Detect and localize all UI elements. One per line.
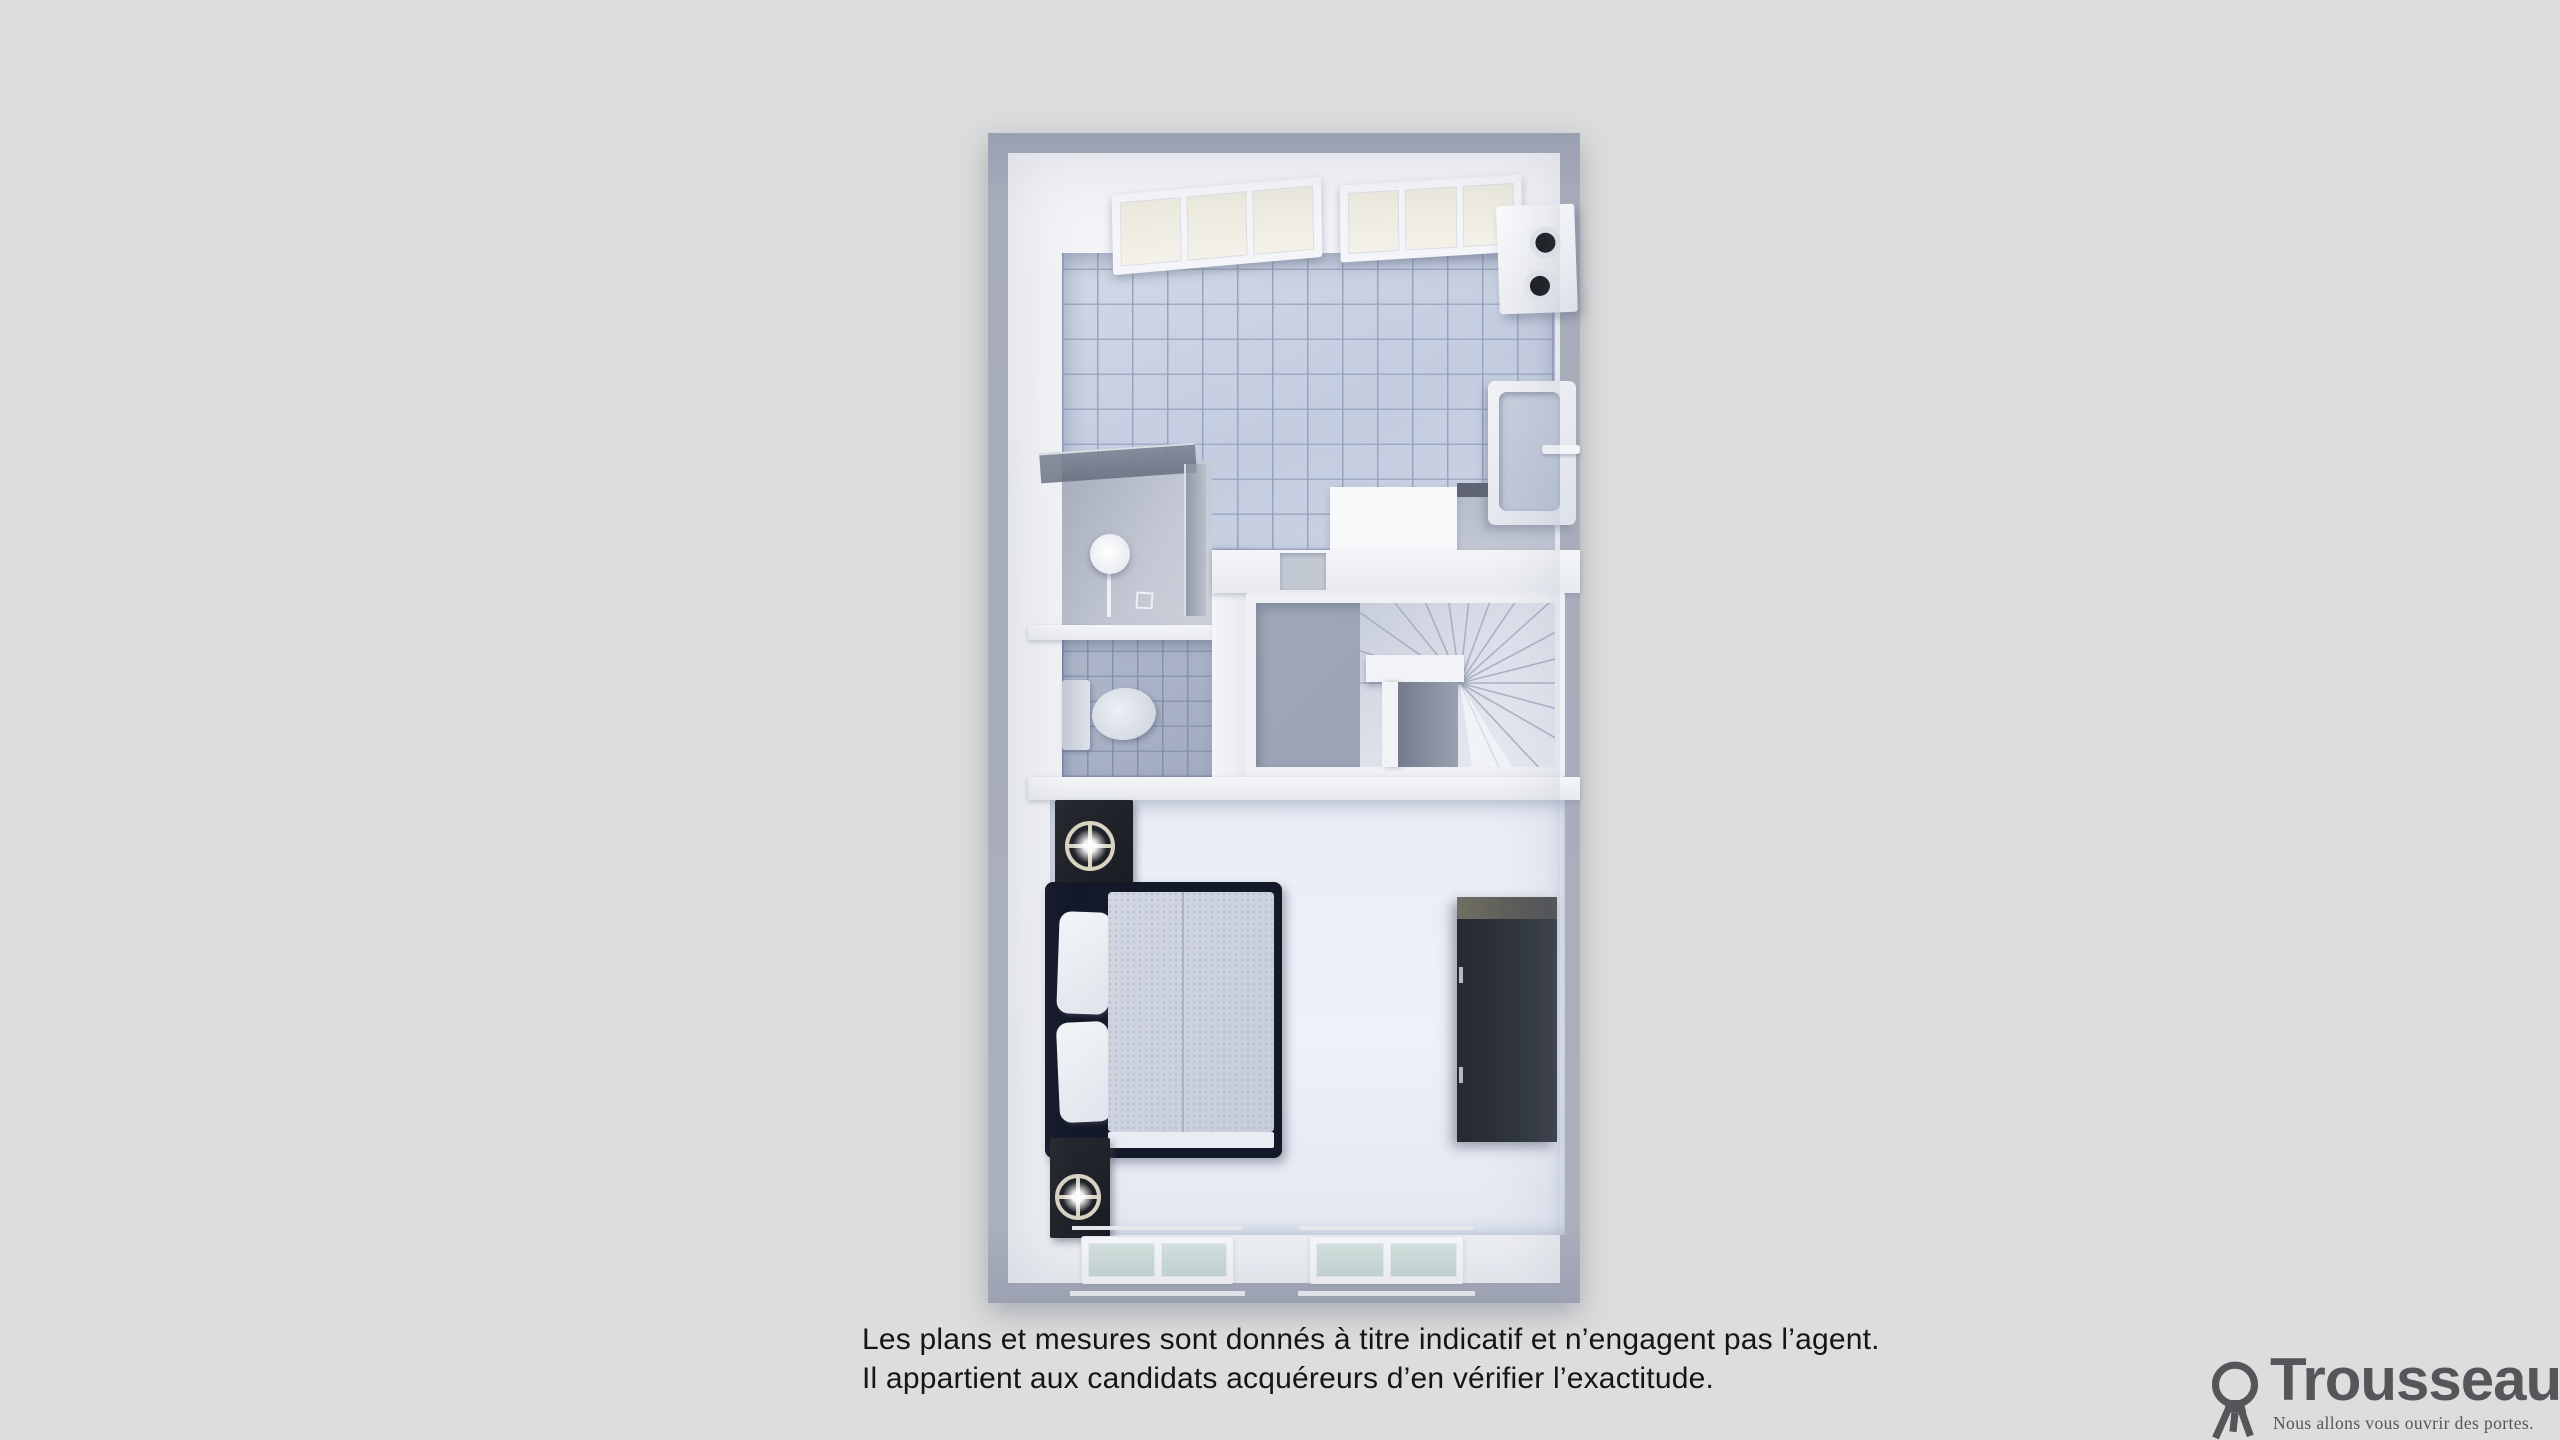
toilet-tank-icon (1062, 680, 1090, 750)
walk-in-shower (1062, 460, 1212, 625)
window-pane (1390, 1243, 1458, 1277)
keyring-icon (2204, 1358, 2266, 1440)
toilet-icon (1089, 685, 1158, 743)
window-icon (1082, 1237, 1233, 1283)
sink-icon (1488, 381, 1576, 525)
window-pane (1253, 185, 1315, 254)
nightstand-icon (1055, 800, 1133, 886)
window-pane (1161, 1243, 1228, 1277)
double-bed-icon (1045, 882, 1282, 1158)
floor-plan (988, 133, 1580, 1303)
water-heater-icon (1496, 204, 1578, 315)
wardrobe-handle-icon (1459, 967, 1463, 983)
wc-room (1062, 640, 1212, 777)
floor-plan-interior (1008, 153, 1560, 1283)
stairwell-void (1398, 682, 1458, 767)
window-pane (1120, 197, 1182, 266)
pipe-outlet-icon (1535, 232, 1556, 253)
table-lamp-icon (1055, 1174, 1101, 1220)
bathroom-doorway (1280, 553, 1326, 590)
pipe-outlet-icon (1530, 276, 1551, 297)
nightstand-icon (1050, 1138, 1110, 1238)
window-pane (1405, 186, 1457, 250)
wardrobe-icon (1457, 897, 1557, 1142)
brand-name: Trousseau (2270, 1350, 2560, 1410)
brand-tagline: Nous allons vous ouvrir des portes. (2273, 1413, 2560, 1434)
window-pane (1348, 190, 1400, 254)
bathroom-storage-box-icon (1330, 487, 1457, 552)
pillow-icon (1056, 911, 1112, 1015)
disclaimer-line-1: Les plans et mesures sont donnés à titre… (862, 1320, 1880, 1359)
disclaimer-line-2: Il appartient aux candidats acquéreurs d… (862, 1359, 1880, 1398)
skylight-window-icon (1340, 174, 1522, 262)
duvet-icon (1108, 892, 1274, 1132)
stair-railing (1366, 655, 1464, 682)
wardrobe-top-panel (1457, 897, 1557, 919)
window-icon (1310, 1237, 1463, 1283)
stair-railing (1382, 682, 1398, 767)
bed-sheet-fold (1108, 1132, 1274, 1148)
wardrobe-handle-icon (1459, 1067, 1463, 1083)
faucet-icon (1542, 445, 1580, 454)
interior-wall (1028, 625, 1212, 640)
disclaimer-text: Les plans et mesures sont donnés à titre… (862, 1320, 1880, 1398)
window-pane (1088, 1243, 1155, 1277)
window-pane (1186, 191, 1248, 260)
shower-glass-panel-icon (1184, 464, 1206, 616)
rain-shower-head-icon (1090, 534, 1130, 574)
page-background: Les plans et mesures sont donnés à titre… (0, 0, 2560, 1440)
agency-logo: Trousseau Nous allons vous ouvrir des po… (2204, 1350, 2560, 1440)
interior-wall (1212, 550, 1580, 593)
window-pane (1316, 1243, 1384, 1277)
pillow-icon (1056, 1021, 1112, 1123)
table-lamp-icon (1065, 821, 1115, 871)
interior-wall (1028, 777, 1580, 800)
logo-text: Trousseau Nous allons vous ouvrir des po… (2270, 1350, 2560, 1434)
shower-drain-icon (1136, 592, 1154, 610)
